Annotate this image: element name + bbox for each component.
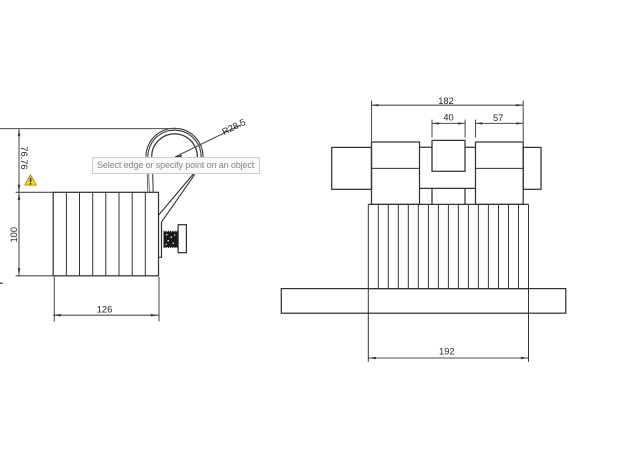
svg-text:40: 40 [443,112,453,122]
svg-text:126: 126 [97,304,113,314]
svg-text:76.76: 76.76 [19,146,29,169]
svg-text:R28.5: R28.5 [220,117,247,137]
svg-text:100: 100 [9,227,19,243]
svg-text:57: 57 [493,113,503,123]
svg-text:192: 192 [439,347,455,357]
svg-text:182: 182 [438,96,454,106]
